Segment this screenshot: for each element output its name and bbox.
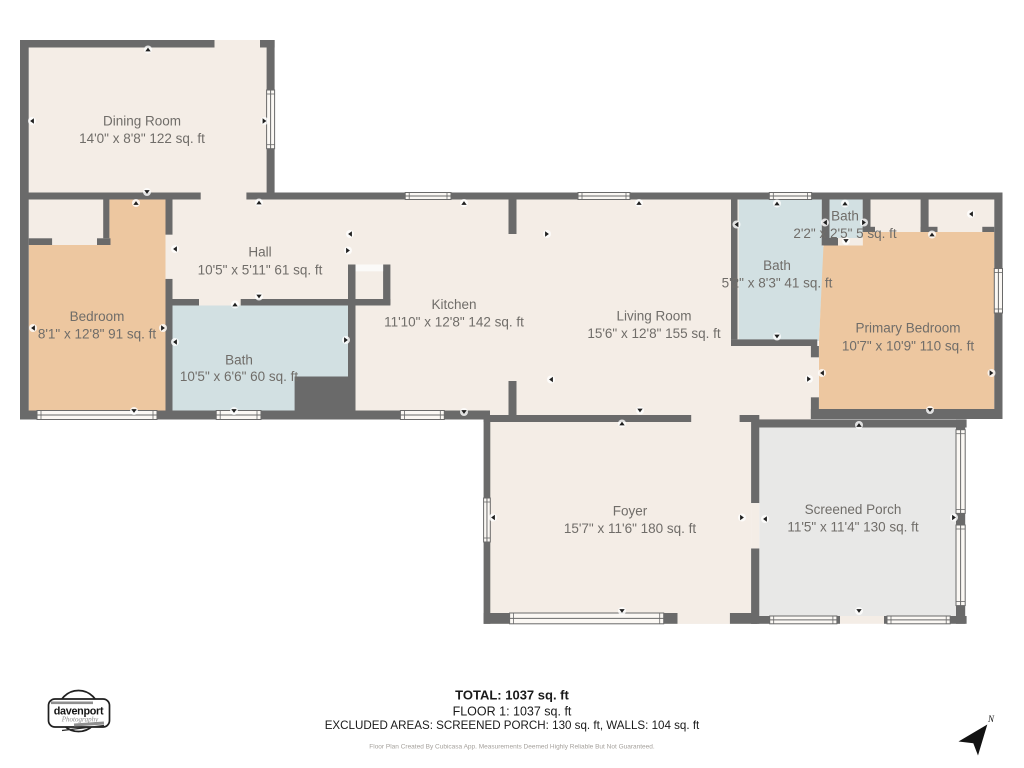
svg-text:8'1" x 12'8" 91 sq. ft: 8'1" x 12'8" 91 sq. ft [38, 327, 157, 342]
svg-text:Floor Plan Created By Cubicasa: Floor Plan Created By Cubicasa App. Meas… [369, 744, 655, 751]
svg-text:FLOOR 1: 1037 sq. ft: FLOOR 1: 1037 sq. ft [453, 705, 572, 719]
svg-text:Bath: Bath [225, 353, 253, 368]
svg-text:TOTAL: 1037 sq. ft: TOTAL: 1037 sq. ft [455, 688, 569, 703]
svg-text:Living Room: Living Room [616, 309, 691, 324]
svg-text:Bedroom: Bedroom [70, 309, 125, 324]
svg-text:14'0" x 8'8" 122 sq. ft: 14'0" x 8'8" 122 sq. ft [79, 131, 205, 146]
svg-text:EXCLUDED AREAS: SCREENED PORCH: EXCLUDED AREAS: SCREENED PORCH: 130 sq. … [325, 719, 700, 732]
svg-text:Bath: Bath [763, 258, 791, 273]
svg-text:2'2" x 2'5" 5 sq. ft: 2'2" x 2'5" 5 sq. ft [793, 226, 897, 241]
svg-text:11'5" x 11'4" 130 sq. ft: 11'5" x 11'4" 130 sq. ft [787, 520, 919, 535]
svg-text:Primary Bedroom: Primary Bedroom [855, 321, 960, 336]
svg-text:Hall: Hall [248, 245, 271, 260]
svg-text:Screened Porch: Screened Porch [805, 502, 902, 517]
svg-text:Foyer: Foyer [613, 504, 648, 519]
svg-text:Dining Room: Dining Room [103, 114, 181, 129]
svg-text:10'7" x 10'9" 110 sq. ft: 10'7" x 10'9" 110 sq. ft [842, 339, 975, 354]
svg-text:Photography: Photography [61, 716, 99, 724]
svg-text:Kitchen: Kitchen [431, 297, 476, 312]
svg-text:N: N [987, 714, 995, 724]
svg-text:10'5" x 6'6" 60 sq. ft: 10'5" x 6'6" 60 sq. ft [180, 369, 299, 384]
svg-text:5'2" x 8'3" 41 sq. ft: 5'2" x 8'3" 41 sq. ft [722, 276, 833, 291]
svg-text:10'5" x 5'11" 61 sq. ft: 10'5" x 5'11" 61 sq. ft [198, 263, 323, 278]
svg-text:15'7" x 11'6" 180 sq. ft: 15'7" x 11'6" 180 sq. ft [564, 521, 697, 536]
svg-text:Bath: Bath [831, 209, 859, 224]
svg-text:11'10" x 12'8" 142 sq. ft: 11'10" x 12'8" 142 sq. ft [384, 315, 524, 330]
svg-text:15'6" x 12'8" 155 sq. ft: 15'6" x 12'8" 155 sq. ft [587, 326, 721, 341]
